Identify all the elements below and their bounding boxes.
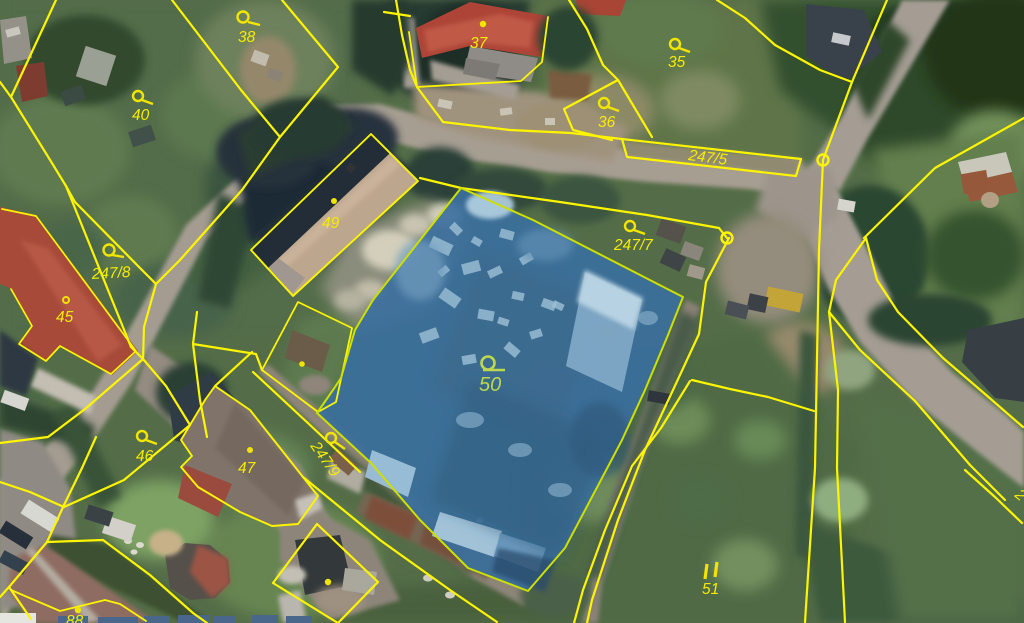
svg-text:247/8: 247/8 [90, 264, 131, 283]
svg-text:247/7: 247/7 [613, 237, 654, 254]
svg-text:49: 49 [322, 215, 340, 232]
svg-text:51: 51 [702, 581, 719, 598]
svg-text:36: 36 [598, 114, 616, 131]
svg-text:40: 40 [132, 107, 150, 124]
svg-text:46: 46 [136, 448, 154, 465]
svg-text:37: 37 [470, 35, 489, 52]
svg-text:45: 45 [56, 309, 74, 326]
svg-text:38: 38 [238, 29, 256, 46]
svg-text:50: 50 [479, 374, 501, 396]
svg-text:35: 35 [668, 54, 686, 71]
svg-text:88: 88 [66, 613, 84, 623]
svg-text:47: 47 [238, 460, 257, 477]
